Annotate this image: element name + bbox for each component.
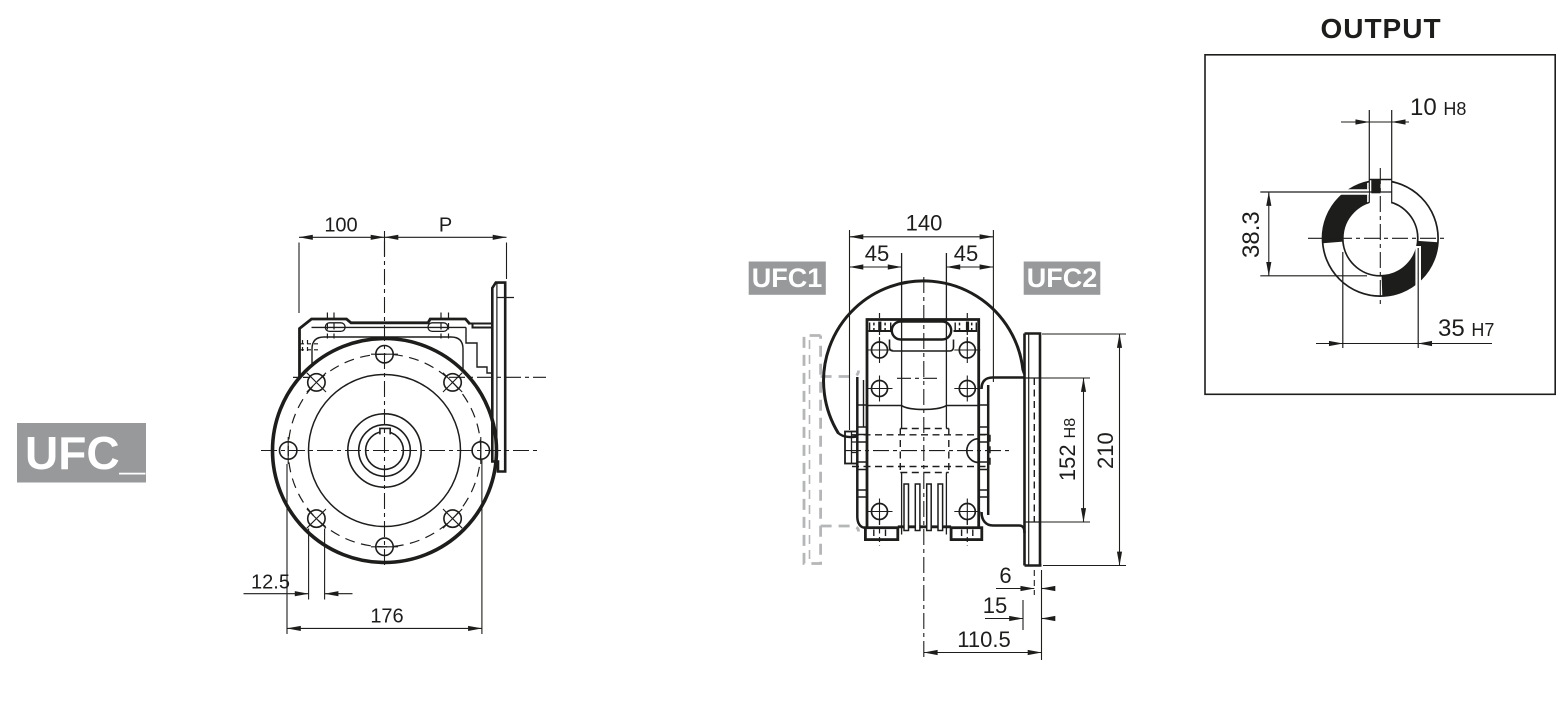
svg-text:110.5: 110.5 xyxy=(957,627,1010,652)
svg-text:176: 176 xyxy=(370,606,403,628)
svg-text:38.3: 38.3 xyxy=(1238,211,1265,258)
svg-text:35 H7: 35 H7 xyxy=(1438,315,1494,342)
svg-text:140: 140 xyxy=(906,211,943,236)
svg-text:OUTPUT: OUTPUT xyxy=(1320,13,1441,44)
svg-text:45: 45 xyxy=(865,241,889,266)
svg-text:UFC_: UFC_ xyxy=(25,427,146,479)
svg-text:10 H8: 10 H8 xyxy=(1410,94,1466,121)
svg-text:15: 15 xyxy=(983,593,1007,618)
svg-text:UFC2: UFC2 xyxy=(1027,263,1098,293)
svg-text:12.5: 12.5 xyxy=(251,572,290,594)
svg-text:6: 6 xyxy=(999,563,1011,588)
svg-text:210: 210 xyxy=(1093,432,1118,469)
svg-text:100: 100 xyxy=(324,215,357,237)
svg-text:P: P xyxy=(439,215,452,237)
svg-text:45: 45 xyxy=(954,241,978,266)
svg-text:UFC1: UFC1 xyxy=(752,263,823,293)
